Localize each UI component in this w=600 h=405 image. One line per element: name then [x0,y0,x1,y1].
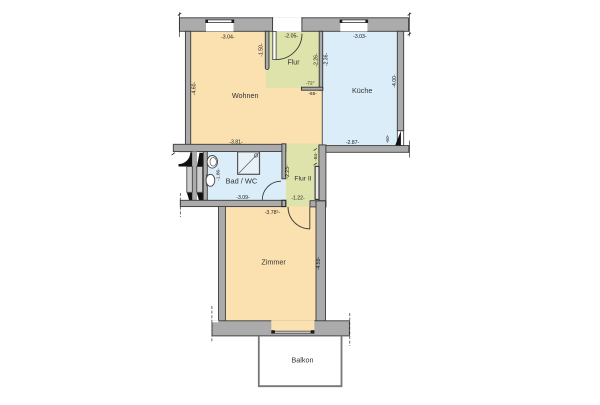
svg-text:Flur II: Flur II [294,176,311,183]
svg-text:-1.22-: -1.22- [291,196,305,202]
svg-text:-84-: -84- [313,152,319,161]
svg-text:Bad / WC: Bad / WC [226,177,258,186]
svg-text:Küche: Küche [352,86,372,95]
svg-text:-3.81-: -3.81- [229,140,243,146]
svg-text:-1.86-: -1.86- [215,168,221,181]
svg-text:-1.50-: -1.50- [259,43,265,57]
svg-text:-3.04-: -3.04- [221,35,235,41]
svg-text:-4.59-: -4.59- [316,256,322,270]
svg-text:Zimmer: Zimmer [261,257,286,266]
svg-text:-3.03-: -3.03- [353,34,367,40]
svg-text:-4.60-: -4.60- [192,81,198,95]
svg-text:-2.05-: -2.05- [285,33,299,39]
svg-text:-2.23-: -2.23- [285,165,291,179]
svg-text:Flur: Flur [287,59,300,66]
svg-text:-60-: -60- [385,134,391,143]
svg-text:-65-: -65- [308,91,317,97]
svg-text:-2.26-: -2.26- [314,53,320,67]
svg-text:-4.00-: -4.00- [392,74,398,88]
svg-text:Wohnen: Wohnen [232,91,259,100]
svg-text:-3.78⁵-: -3.78⁵- [265,210,281,216]
svg-text:-2.36-: -2.36- [323,52,329,66]
svg-text:-2.87-: -2.87- [346,140,360,146]
svg-text:Balkon: Balkon [292,356,314,365]
svg-text:-72°: -72° [306,80,315,86]
svg-text:-3.09-: -3.09- [236,195,250,201]
